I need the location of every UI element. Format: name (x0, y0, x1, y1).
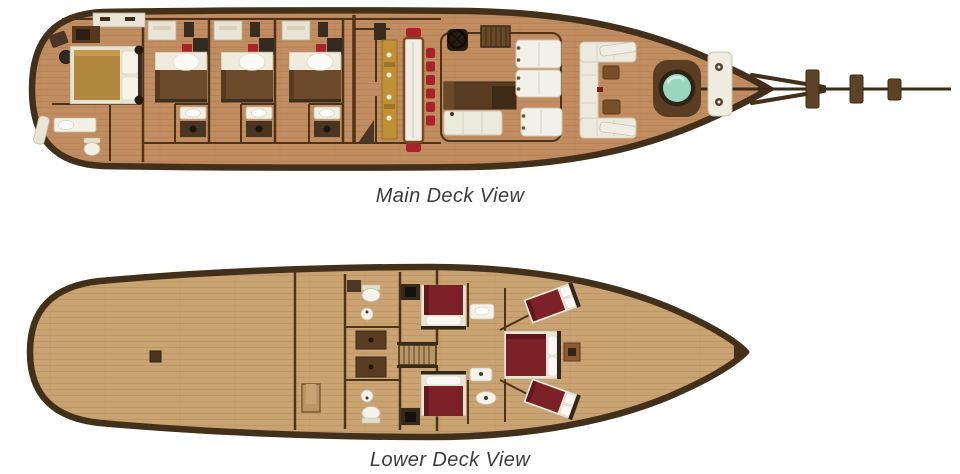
floor-hatch (150, 351, 161, 362)
deck-fitting (597, 87, 603, 92)
skylight-porthole (653, 60, 701, 117)
bowsprit-crossbar (806, 70, 819, 108)
washbasin (361, 390, 373, 402)
cocktail-table (603, 66, 619, 79)
companionway-stairs (481, 26, 510, 47)
staircase (397, 342, 438, 368)
vip-cabin-bed (504, 331, 561, 379)
saloon-sofa (444, 82, 516, 109)
windlass (708, 52, 732, 116)
starboard-cabin-bed (421, 371, 466, 416)
port-cabin-bed (421, 285, 466, 330)
wheelhouse (441, 26, 562, 141)
main-deck-caption: Main Deck View (0, 185, 900, 208)
bench-seat (444, 111, 502, 135)
master-bed (70, 46, 144, 105)
dining-table (404, 38, 423, 142)
nightstand (564, 343, 580, 361)
galley-counter (382, 40, 397, 139)
doorway (374, 23, 386, 40)
bowsprit-crossbar (850, 75, 863, 103)
toilet (362, 407, 380, 420)
helm-wheel (447, 29, 468, 51)
storage-bracket (302, 384, 320, 412)
yacht-deck-plan-page: Main Deck View Lower Deck View (0, 0, 960, 474)
main-deck-plan (32, 10, 951, 167)
lower-deck-plan (30, 267, 750, 437)
lower-deck-hull (30, 267, 750, 437)
bowsprit-crossbar (888, 79, 901, 100)
deck-plans-graphic (0, 0, 960, 474)
cocktail-table (603, 100, 620, 114)
sun-pads (516, 40, 562, 136)
washbasin (361, 308, 373, 320)
toilet (362, 289, 380, 302)
lower-deck-caption: Lower Deck View (0, 449, 900, 472)
